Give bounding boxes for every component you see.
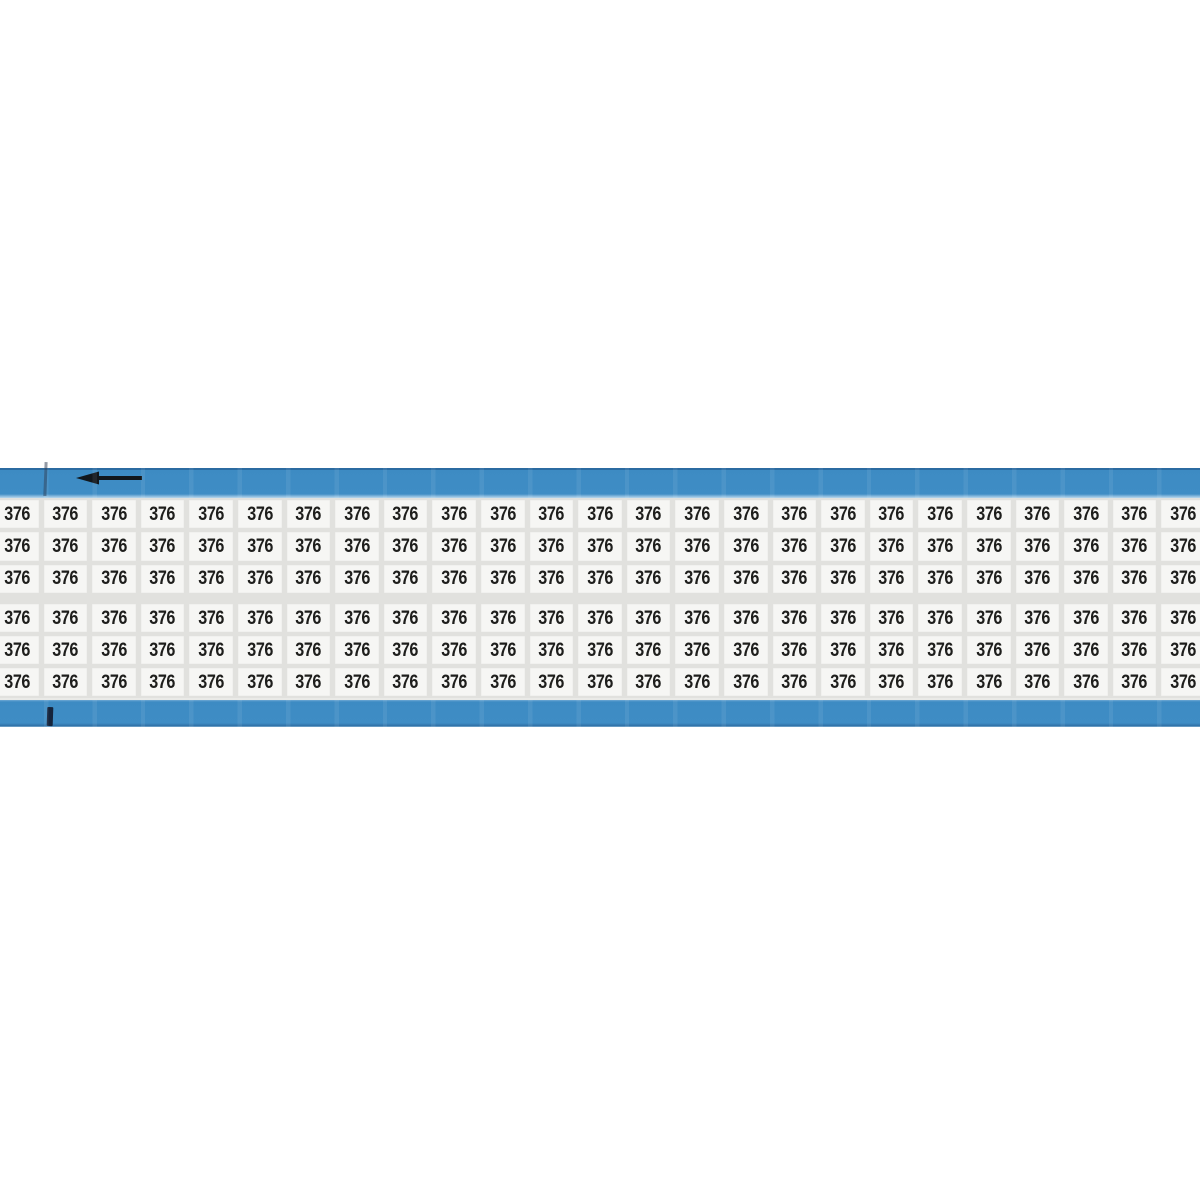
wire-marker-label-text: 376 — [636, 609, 662, 628]
wire-marker-label: 376 — [724, 565, 768, 593]
wire-marker-label-text: 376 — [1073, 673, 1099, 692]
wire-marker-label: 376 — [335, 532, 379, 560]
wire-marker-label: 376 — [432, 532, 476, 560]
wire-marker-label-text: 376 — [927, 609, 953, 628]
tape-band-top — [0, 468, 1200, 498]
wire-marker-label-text: 376 — [830, 641, 856, 660]
wire-marker-label: 376 — [287, 636, 331, 664]
wire-marker-label-text: 376 — [1073, 641, 1099, 660]
wire-marker-label: 376 — [432, 668, 476, 696]
wire-marker-label-text: 376 — [490, 537, 516, 556]
wire-marker-label: 376 — [92, 604, 136, 632]
wire-marker-label: 376 — [724, 668, 768, 696]
wire-marker-label-text: 376 — [393, 569, 419, 588]
wire-marker-label-text: 376 — [4, 609, 30, 628]
wire-marker-label: 376 — [141, 565, 185, 593]
label-group: 3763763763763763763763763763763763763763… — [0, 500, 1200, 593]
wire-marker-label: 376 — [724, 532, 768, 560]
wire-marker-label-text: 376 — [296, 609, 322, 628]
wire-marker-label: 376 — [578, 532, 622, 560]
wire-marker-label: 376 — [481, 532, 525, 560]
wire-marker-label-text: 376 — [1122, 537, 1148, 556]
wire-marker-label: 376 — [141, 604, 185, 632]
wire-marker-label: 376 — [238, 532, 282, 560]
wire-marker-label: 376 — [530, 668, 574, 696]
wire-marker-label-text: 376 — [830, 569, 856, 588]
wire-marker-label-text: 376 — [4, 537, 30, 556]
wire-marker-label: 376 — [870, 532, 914, 560]
wire-marker-label: 376 — [530, 636, 574, 664]
wire-marker-label-text: 376 — [150, 569, 176, 588]
wire-marker-label-text: 376 — [441, 609, 467, 628]
wire-marker-label: 376 — [675, 565, 719, 593]
wire-marker-label: 376 — [432, 636, 476, 664]
wire-marker-label-text: 376 — [539, 673, 565, 692]
wire-marker-label: 376 — [287, 500, 331, 528]
wire-marker-label-text: 376 — [490, 569, 516, 588]
wire-marker-label: 376 — [92, 565, 136, 593]
wire-marker-label-text: 376 — [782, 641, 808, 660]
tape-band-bottom — [0, 700, 1200, 727]
wire-marker-label: 376 — [627, 532, 671, 560]
wire-marker-label-text: 376 — [198, 609, 224, 628]
wire-marker-label-text: 376 — [927, 537, 953, 556]
wire-marker-label-text: 376 — [684, 537, 710, 556]
wire-marker-label: 376 — [189, 565, 233, 593]
wire-marker-label-text: 376 — [490, 609, 516, 628]
wire-marker-label: 376 — [675, 636, 719, 664]
wire-marker-label: 376 — [967, 532, 1011, 560]
wire-marker-label-text: 376 — [53, 609, 79, 628]
wire-marker-label: 376 — [627, 604, 671, 632]
wire-marker-label-text: 376 — [441, 673, 467, 692]
wire-marker-label-text: 376 — [830, 505, 856, 524]
wire-marker-label: 376 — [432, 565, 476, 593]
wire-marker-label: 376 — [1161, 500, 1200, 528]
wire-marker-label-text: 376 — [393, 505, 419, 524]
wire-marker-label: 376 — [287, 532, 331, 560]
wire-marker-label-text: 376 — [830, 673, 856, 692]
wire-marker-label-text: 376 — [539, 641, 565, 660]
wire-marker-label: 376 — [238, 636, 282, 664]
wire-marker-label: 376 — [384, 604, 428, 632]
wire-marker-label-text: 376 — [587, 641, 613, 660]
wire-marker-label: 376 — [967, 636, 1011, 664]
wire-marker-label-text: 376 — [684, 673, 710, 692]
wire-marker-label-text: 376 — [344, 673, 370, 692]
wire-marker-label-text: 376 — [1025, 537, 1051, 556]
wire-marker-label-text: 376 — [1170, 609, 1196, 628]
wire-marker-label: 376 — [0, 636, 39, 664]
wire-marker-label: 376 — [384, 668, 428, 696]
wire-marker-label-text: 376 — [150, 537, 176, 556]
wire-marker-label-text: 376 — [1073, 569, 1099, 588]
wire-marker-label: 376 — [821, 636, 865, 664]
wire-marker-label: 376 — [918, 636, 962, 664]
label-field: 3763763763763763763763763763763763763763… — [0, 498, 1200, 698]
wire-marker-label: 376 — [1161, 604, 1200, 632]
wire-marker-label-text: 376 — [247, 609, 273, 628]
wire-marker-label-text: 376 — [296, 641, 322, 660]
wire-marker-label: 376 — [92, 636, 136, 664]
wire-marker-label: 376 — [1113, 604, 1157, 632]
wire-marker-label: 376 — [1016, 565, 1060, 593]
wire-marker-label: 376 — [92, 500, 136, 528]
wire-marker-label: 376 — [1113, 636, 1157, 664]
wire-marker-label-text: 376 — [344, 609, 370, 628]
wire-marker-label-text: 376 — [101, 569, 127, 588]
wire-marker-label-text: 376 — [684, 569, 710, 588]
wire-marker-label-text: 376 — [1122, 673, 1148, 692]
wire-marker-label: 376 — [675, 668, 719, 696]
wire-marker-label: 376 — [481, 565, 525, 593]
wire-marker-label-text: 376 — [393, 609, 419, 628]
wire-marker-label-text: 376 — [101, 673, 127, 692]
wire-marker-label-text: 376 — [1073, 609, 1099, 628]
wire-marker-label: 376 — [821, 500, 865, 528]
wire-marker-label-text: 376 — [1170, 641, 1196, 660]
wire-marker-label-text: 376 — [976, 505, 1002, 524]
wire-marker-label-text: 376 — [296, 537, 322, 556]
wire-marker-label-text: 376 — [4, 673, 30, 692]
wire-marker-label: 376 — [189, 500, 233, 528]
wire-marker-label-text: 376 — [101, 641, 127, 660]
wire-marker-label-text: 376 — [733, 537, 759, 556]
wire-marker-label-text: 376 — [976, 569, 1002, 588]
wire-marker-label: 376 — [870, 668, 914, 696]
wire-marker-label-text: 376 — [830, 609, 856, 628]
wire-marker-label: 376 — [773, 604, 817, 632]
wire-marker-label: 376 — [578, 565, 622, 593]
wire-marker-label-text: 376 — [733, 505, 759, 524]
registration-tick-top-icon — [43, 462, 47, 496]
wire-marker-label-text: 376 — [1073, 537, 1099, 556]
wire-marker-label: 376 — [44, 636, 88, 664]
wire-marker-label: 376 — [870, 604, 914, 632]
wire-marker-label: 376 — [918, 668, 962, 696]
wire-marker-label-text: 376 — [782, 569, 808, 588]
wire-marker-label: 376 — [432, 604, 476, 632]
wire-marker-label: 376 — [238, 565, 282, 593]
wire-marker-label-text: 376 — [247, 673, 273, 692]
wire-marker-label: 376 — [0, 604, 39, 632]
wire-marker-label: 376 — [335, 604, 379, 632]
wire-marker-label-text: 376 — [587, 569, 613, 588]
wire-marker-label-text: 376 — [927, 569, 953, 588]
wire-marker-label: 376 — [481, 636, 525, 664]
wire-marker-label: 376 — [773, 565, 817, 593]
wire-marker-label: 376 — [44, 668, 88, 696]
wire-marker-label-text: 376 — [1025, 673, 1051, 692]
wire-marker-label: 376 — [1064, 500, 1108, 528]
wire-marker-label-text: 376 — [636, 641, 662, 660]
wire-marker-label-text: 376 — [733, 673, 759, 692]
wire-marker-label-text: 376 — [247, 505, 273, 524]
wire-marker-label: 376 — [870, 500, 914, 528]
wire-marker-label-text: 376 — [539, 569, 565, 588]
wire-marker-label-text: 376 — [733, 569, 759, 588]
wire-marker-label-text: 376 — [636, 537, 662, 556]
wire-marker-label-text: 376 — [393, 673, 419, 692]
wire-marker-label: 376 — [384, 500, 428, 528]
wire-marker-label-text: 376 — [441, 537, 467, 556]
wire-marker-label: 376 — [287, 565, 331, 593]
wire-marker-label-text: 376 — [782, 673, 808, 692]
wire-marker-label: 376 — [675, 500, 719, 528]
wire-marker-label-text: 376 — [101, 537, 127, 556]
wire-marker-label: 376 — [773, 636, 817, 664]
wire-marker-label: 376 — [238, 668, 282, 696]
wire-marker-label-text: 376 — [879, 569, 905, 588]
wire-marker-label-text: 376 — [684, 641, 710, 660]
wire-marker-label-text: 376 — [53, 641, 79, 660]
registration-tick-bottom-icon — [47, 707, 53, 726]
wire-marker-label-text: 376 — [53, 569, 79, 588]
wire-marker-label-text: 376 — [636, 505, 662, 524]
wire-marker-label-text: 376 — [1122, 505, 1148, 524]
wire-marker-label-text: 376 — [150, 673, 176, 692]
wire-marker-label: 376 — [1113, 668, 1157, 696]
wire-marker-label: 376 — [675, 604, 719, 632]
wire-marker-label-text: 376 — [490, 505, 516, 524]
wire-marker-label: 376 — [335, 500, 379, 528]
wire-marker-label-text: 376 — [344, 641, 370, 660]
wire-marker-label: 376 — [918, 604, 962, 632]
wire-marker-card: 3763763763763763763763763763763763763763… — [0, 468, 1200, 727]
wire-marker-label-text: 376 — [198, 641, 224, 660]
wire-marker-label-text: 376 — [296, 569, 322, 588]
wire-marker-label-text: 376 — [441, 569, 467, 588]
wire-marker-label-text: 376 — [4, 641, 30, 660]
wire-marker-label-text: 376 — [587, 609, 613, 628]
wire-marker-label: 376 — [530, 532, 574, 560]
wire-marker-label-text: 376 — [879, 609, 905, 628]
wire-marker-label: 376 — [0, 668, 39, 696]
wire-marker-label-text: 376 — [927, 673, 953, 692]
wire-marker-label-text: 376 — [1025, 569, 1051, 588]
wire-marker-label: 376 — [530, 500, 574, 528]
wire-marker-label-text: 376 — [1122, 641, 1148, 660]
wire-marker-label: 376 — [1016, 668, 1060, 696]
wire-marker-label-text: 376 — [150, 609, 176, 628]
wire-marker-label-text: 376 — [53, 505, 79, 524]
wire-marker-label: 376 — [967, 668, 1011, 696]
wire-marker-label: 376 — [821, 565, 865, 593]
wire-marker-label-text: 376 — [4, 569, 30, 588]
wire-marker-label: 376 — [287, 668, 331, 696]
wire-marker-label: 376 — [189, 668, 233, 696]
wire-marker-label-text: 376 — [636, 673, 662, 692]
wire-marker-label: 376 — [1113, 532, 1157, 560]
wire-marker-label-text: 376 — [247, 569, 273, 588]
wire-marker-label: 376 — [92, 668, 136, 696]
wire-marker-label: 376 — [724, 636, 768, 664]
wire-marker-label: 376 — [1113, 500, 1157, 528]
wire-marker-label-text: 376 — [198, 569, 224, 588]
wire-marker-label: 376 — [773, 668, 817, 696]
wire-marker-label: 376 — [821, 604, 865, 632]
wire-marker-label-text: 376 — [198, 505, 224, 524]
wire-marker-label: 376 — [1016, 500, 1060, 528]
wire-marker-label-text: 376 — [247, 537, 273, 556]
wire-marker-label: 376 — [481, 604, 525, 632]
wire-marker-label-text: 376 — [782, 505, 808, 524]
wire-marker-label-text: 376 — [247, 641, 273, 660]
wire-marker-label-text: 376 — [1073, 505, 1099, 524]
wire-marker-label: 376 — [530, 604, 574, 632]
wire-marker-label-text: 376 — [782, 537, 808, 556]
wire-marker-label: 376 — [44, 532, 88, 560]
wire-marker-label-text: 376 — [684, 505, 710, 524]
wire-marker-label: 376 — [918, 500, 962, 528]
wire-marker-label: 376 — [1016, 532, 1060, 560]
wire-marker-label-text: 376 — [879, 673, 905, 692]
wire-marker-label: 376 — [44, 500, 88, 528]
wire-marker-label-text: 376 — [636, 569, 662, 588]
wire-marker-label: 376 — [724, 500, 768, 528]
wire-marker-label-text: 376 — [733, 609, 759, 628]
wire-marker-label-text: 376 — [53, 673, 79, 692]
wire-marker-label-text: 376 — [198, 537, 224, 556]
wire-marker-label-text: 376 — [441, 505, 467, 524]
wire-marker-label: 376 — [141, 500, 185, 528]
wire-marker-label: 376 — [238, 604, 282, 632]
wire-marker-label-text: 376 — [296, 673, 322, 692]
wire-marker-label-text: 376 — [587, 505, 613, 524]
wire-marker-label: 376 — [1064, 532, 1108, 560]
wire-marker-label: 376 — [1161, 532, 1200, 560]
wire-marker-label: 376 — [384, 532, 428, 560]
wire-marker-label: 376 — [773, 532, 817, 560]
wire-marker-label-text: 376 — [587, 673, 613, 692]
wire-marker-label: 376 — [627, 565, 671, 593]
wire-marker-label-text: 376 — [296, 505, 322, 524]
wire-marker-label-text: 376 — [539, 505, 565, 524]
wire-marker-label: 376 — [481, 500, 525, 528]
wire-marker-label: 376 — [627, 636, 671, 664]
wire-marker-label-text: 376 — [1170, 505, 1196, 524]
wire-marker-label-text: 376 — [879, 537, 905, 556]
wire-marker-label: 376 — [1064, 636, 1108, 664]
wire-marker-label-text: 376 — [198, 673, 224, 692]
wire-marker-label: 376 — [141, 532, 185, 560]
wire-marker-label: 376 — [1161, 636, 1200, 664]
wire-marker-label: 376 — [627, 500, 671, 528]
wire-marker-label: 376 — [530, 565, 574, 593]
wire-marker-label-text: 376 — [1025, 505, 1051, 524]
wire-marker-label-text: 376 — [539, 537, 565, 556]
wire-marker-label-text: 376 — [1122, 609, 1148, 628]
wire-marker-label: 376 — [578, 668, 622, 696]
wire-marker-label-text: 376 — [587, 537, 613, 556]
wire-marker-label: 376 — [967, 500, 1011, 528]
wire-marker-label-text: 376 — [490, 641, 516, 660]
wire-marker-label-text: 376 — [4, 505, 30, 524]
wire-marker-label: 376 — [870, 565, 914, 593]
wire-marker-label: 376 — [773, 500, 817, 528]
wire-marker-label: 376 — [1016, 636, 1060, 664]
wire-marker-label-text: 376 — [684, 609, 710, 628]
wire-marker-label-text: 376 — [344, 569, 370, 588]
wire-marker-label-text: 376 — [830, 537, 856, 556]
wire-marker-label: 376 — [0, 532, 39, 560]
wire-marker-label: 376 — [1113, 565, 1157, 593]
wire-marker-label: 376 — [967, 604, 1011, 632]
wire-marker-label-text: 376 — [879, 641, 905, 660]
wire-marker-label: 376 — [821, 532, 865, 560]
wire-marker-label: 376 — [578, 500, 622, 528]
wire-marker-label-text: 376 — [927, 641, 953, 660]
wire-marker-label: 376 — [1064, 604, 1108, 632]
wire-marker-label: 376 — [1064, 565, 1108, 593]
wire-marker-label: 376 — [432, 500, 476, 528]
label-group: 3763763763763763763763763763763763763763… — [0, 604, 1200, 696]
wire-marker-label-text: 376 — [733, 641, 759, 660]
wire-marker-label-text: 376 — [976, 641, 1002, 660]
wire-marker-label-text: 376 — [782, 609, 808, 628]
wire-marker-label-text: 376 — [879, 505, 905, 524]
wire-marker-label-text: 376 — [1122, 569, 1148, 588]
wire-marker-label: 376 — [918, 532, 962, 560]
wire-marker-label: 376 — [92, 532, 136, 560]
wire-marker-label-text: 376 — [150, 641, 176, 660]
wire-marker-label: 376 — [578, 636, 622, 664]
wire-marker-label: 376 — [675, 532, 719, 560]
wire-marker-label: 376 — [335, 565, 379, 593]
wire-marker-label-text: 376 — [976, 673, 1002, 692]
wire-marker-label: 376 — [141, 636, 185, 664]
wire-marker-label: 376 — [918, 565, 962, 593]
wire-marker-label-text: 376 — [1170, 537, 1196, 556]
wire-marker-label: 376 — [335, 668, 379, 696]
wire-marker-label: 376 — [0, 500, 39, 528]
wire-marker-label: 376 — [578, 604, 622, 632]
wire-marker-label: 376 — [724, 604, 768, 632]
wire-marker-label-text: 376 — [53, 537, 79, 556]
wire-marker-label: 376 — [1064, 668, 1108, 696]
wire-marker-label-text: 376 — [344, 505, 370, 524]
wire-marker-label-text: 376 — [1025, 641, 1051, 660]
wire-marker-label: 376 — [1161, 668, 1200, 696]
wire-marker-label: 376 — [44, 565, 88, 593]
wire-marker-label-text: 376 — [490, 673, 516, 692]
wire-marker-label-text: 376 — [393, 537, 419, 556]
wire-marker-label-text: 376 — [101, 609, 127, 628]
wire-marker-label: 376 — [821, 668, 865, 696]
wire-marker-label: 376 — [189, 604, 233, 632]
wire-marker-label: 376 — [141, 668, 185, 696]
wire-marker-label: 376 — [287, 604, 331, 632]
wire-marker-label: 376 — [481, 668, 525, 696]
wire-marker-label-text: 376 — [976, 537, 1002, 556]
wire-marker-label: 376 — [627, 668, 671, 696]
wire-marker-label-text: 376 — [927, 505, 953, 524]
wire-marker-label: 376 — [1161, 565, 1200, 593]
wire-marker-label-text: 376 — [441, 641, 467, 660]
wire-marker-label: 376 — [1016, 604, 1060, 632]
wire-marker-label: 376 — [335, 636, 379, 664]
wire-marker-label-text: 376 — [1170, 673, 1196, 692]
wire-marker-label: 376 — [870, 636, 914, 664]
wire-marker-label-text: 376 — [976, 609, 1002, 628]
wire-marker-label: 376 — [384, 565, 428, 593]
wire-marker-label: 376 — [189, 532, 233, 560]
left-arrow-icon — [76, 470, 142, 486]
wire-marker-label-text: 376 — [539, 609, 565, 628]
wire-marker-label-text: 376 — [1025, 609, 1051, 628]
wire-marker-label: 376 — [384, 636, 428, 664]
wire-marker-label: 376 — [44, 604, 88, 632]
